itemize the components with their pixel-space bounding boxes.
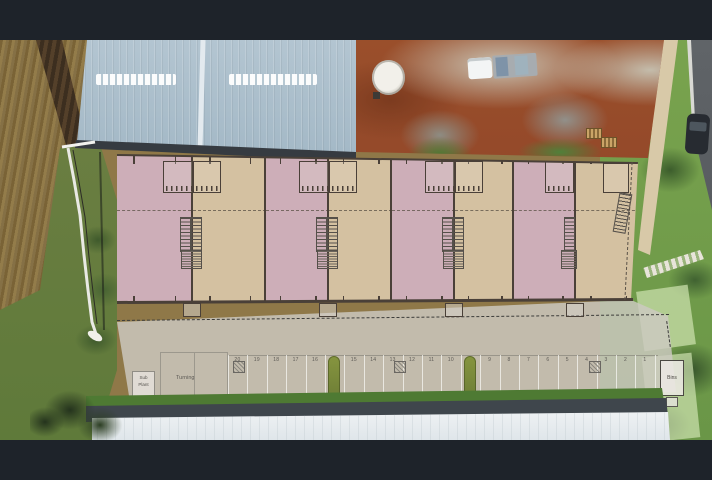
entry-porch bbox=[183, 303, 201, 317]
entry-porch bbox=[445, 303, 463, 317]
site-plan-overlay-units bbox=[117, 155, 638, 303]
stair-landing bbox=[443, 250, 464, 269]
timber-pallet bbox=[586, 128, 602, 139]
mezzanine-dashed-line bbox=[392, 210, 455, 211]
stair-pair bbox=[442, 217, 464, 267]
stair-flight-left bbox=[316, 217, 327, 252]
water-tank bbox=[372, 60, 405, 95]
tank-valve-box bbox=[373, 92, 380, 99]
car-windshield bbox=[689, 121, 707, 131]
work-truck bbox=[467, 52, 541, 83]
listing-photo: 2019181716151413121110987654321 Turning … bbox=[0, 0, 712, 480]
amenities-fixtures bbox=[548, 186, 571, 191]
mezzanine-dashed-line bbox=[455, 210, 514, 211]
amenities-block bbox=[299, 161, 357, 193]
mezzanine-dashed-line bbox=[514, 210, 576, 211]
truck-cab bbox=[467, 57, 492, 80]
truck-cargo bbox=[514, 55, 528, 75]
stair-flight-left bbox=[180, 217, 191, 252]
parking-stall-number: 5 bbox=[558, 357, 577, 363]
amenities-fixtures bbox=[302, 186, 354, 191]
trees-bottom-left bbox=[30, 380, 150, 440]
stair-flight-left bbox=[442, 217, 453, 252]
stair-landing bbox=[181, 250, 202, 269]
bin-enclosure: Bins bbox=[660, 360, 684, 396]
amenities-block bbox=[545, 161, 574, 193]
parking-stall-number: 6 bbox=[538, 357, 557, 363]
bin-enclosure-small bbox=[666, 397, 678, 407]
parking-stall-number: 15 bbox=[344, 357, 363, 363]
stair-single bbox=[561, 217, 583, 267]
parking-stall-number: 16 bbox=[306, 357, 325, 363]
amenities-block bbox=[163, 161, 221, 193]
parking-stall-number: 8 bbox=[500, 357, 519, 363]
stair-landing bbox=[561, 250, 577, 269]
parking-stall-number: 2 bbox=[616, 357, 635, 363]
entry-porch bbox=[566, 303, 584, 317]
turning-bay-divider bbox=[194, 353, 195, 395]
parking-stall-number: 19 bbox=[247, 357, 266, 363]
mezzanine-dashed-line bbox=[117, 210, 191, 211]
stair-flight bbox=[564, 217, 575, 252]
stall-line bbox=[461, 355, 462, 396]
amenities-block bbox=[425, 161, 483, 193]
letterbox-bottom bbox=[0, 440, 712, 480]
parking-stall-number: 18 bbox=[267, 357, 286, 363]
mezzanine-dashed-line bbox=[576, 210, 640, 211]
external-stair-block bbox=[603, 163, 629, 193]
mezzanine-dashed-line bbox=[266, 210, 329, 211]
service-hatch-square bbox=[233, 361, 245, 373]
turning-label: Turning bbox=[176, 375, 194, 381]
mezzanine-dashed-line bbox=[329, 210, 392, 211]
truck-cargo bbox=[495, 57, 508, 77]
parking-stall-number: 17 bbox=[286, 357, 305, 363]
bins-label: Bins bbox=[667, 375, 677, 381]
stair-flight-right bbox=[327, 217, 338, 252]
roof-skylights-left bbox=[96, 74, 176, 85]
roof-skylights-right bbox=[229, 74, 317, 85]
service-hatch-square bbox=[394, 361, 406, 373]
stall-line bbox=[325, 355, 326, 396]
mezzanine-dashed-line bbox=[193, 210, 266, 211]
stair-flight-right bbox=[453, 217, 464, 252]
parked-car bbox=[685, 113, 711, 155]
parking-stall-number: 7 bbox=[519, 357, 538, 363]
amenities-fixtures bbox=[428, 186, 480, 191]
parking-stall-number: 9 bbox=[480, 357, 499, 363]
entry-porch bbox=[319, 303, 337, 317]
parking-stall-number: 14 bbox=[364, 357, 383, 363]
letterbox-top bbox=[0, 0, 712, 40]
parking-stall-number: 10 bbox=[441, 357, 460, 363]
amenities-fixtures bbox=[166, 186, 218, 191]
service-hatch-square bbox=[589, 361, 601, 373]
parking-row-line bbox=[228, 355, 658, 356]
stair-flight-right bbox=[191, 217, 202, 252]
timber-pallet bbox=[601, 137, 617, 148]
door-jamb-tick bbox=[133, 155, 135, 164]
stair-pair bbox=[316, 217, 338, 267]
aerial-photo: 2019181716151413121110987654321 Turning … bbox=[0, 40, 712, 440]
turning-bay bbox=[160, 352, 228, 396]
stair-landing bbox=[317, 250, 338, 269]
parking-stall-number: 1 bbox=[635, 357, 654, 363]
parking-stall-number: 11 bbox=[422, 357, 441, 363]
stair-pair bbox=[180, 217, 202, 267]
